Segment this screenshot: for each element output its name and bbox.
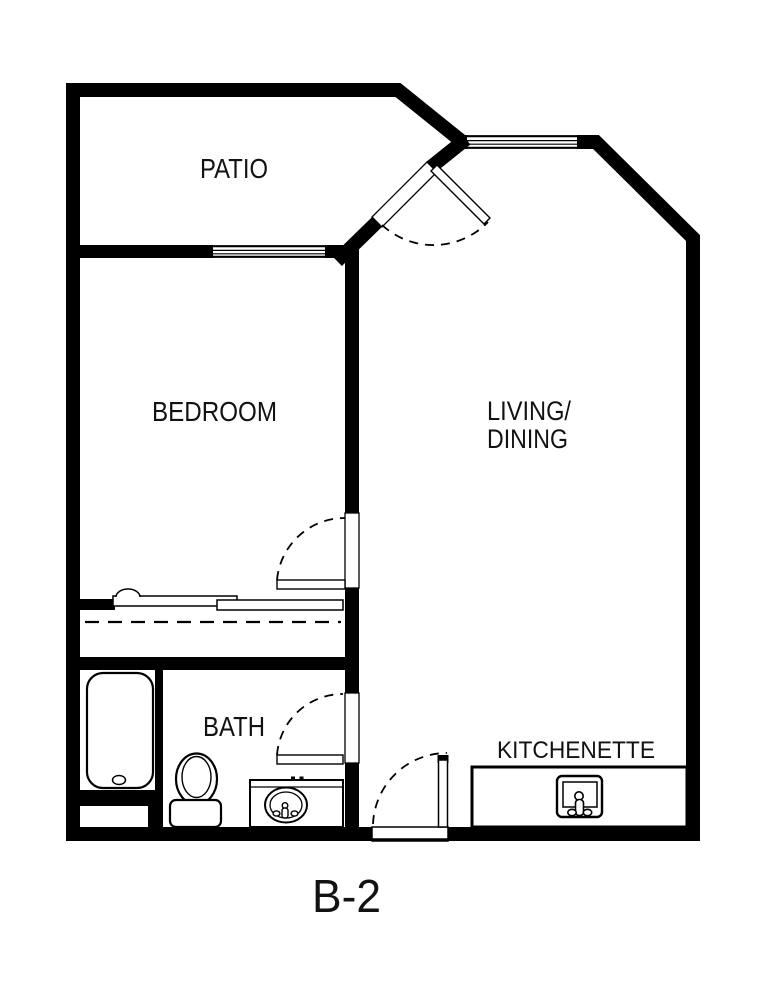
bathtub xyxy=(80,670,163,834)
vanity-spout xyxy=(282,808,288,818)
angled-wall-stub-upper xyxy=(431,139,466,167)
floor-plan-drawing: PATIO BEDROOM LIVING/ DINING BATH KITCHE… xyxy=(0,0,767,998)
exterior-wall-outline xyxy=(73,90,693,834)
room-label-bath: BATH xyxy=(203,711,265,742)
entry-door-leaf xyxy=(439,760,448,827)
bath-living-wall-lower xyxy=(345,763,359,828)
toilet-tank xyxy=(170,800,221,827)
bedroom-door-leaf xyxy=(277,580,345,589)
bedroom-living-wall-middle xyxy=(345,588,359,693)
bath-doorway-opening xyxy=(345,693,359,763)
room-label-kitchenette: KITCHENETTE xyxy=(497,737,655,764)
kitchen-sink-handle xyxy=(583,809,591,815)
closet-sliding-doors xyxy=(80,589,343,622)
bedroom-doorway-opening xyxy=(345,513,359,588)
bedroom-window xyxy=(213,245,325,258)
living-top-window xyxy=(467,135,577,149)
bedroom-living-wall-upper xyxy=(345,245,359,513)
bath-door-leaf xyxy=(277,755,343,764)
entry-door xyxy=(372,753,449,841)
bathtub-outline xyxy=(87,673,153,788)
bedroom-door xyxy=(277,513,359,589)
tub-wall-niche xyxy=(80,806,148,827)
kitchen-sink-handle xyxy=(568,809,576,815)
vanity-handle xyxy=(291,811,298,816)
patio-door xyxy=(372,162,490,245)
closet-door-handle xyxy=(116,589,140,597)
room-label-bedroom: BEDROOM xyxy=(152,396,277,427)
vanity-faucet-tick xyxy=(291,777,295,781)
floor-plan-page: PATIO BEDROOM LIVING/ DINING BATH KITCHE… xyxy=(0,0,767,998)
vanity-sink xyxy=(250,777,343,828)
patio-door-swing-arc xyxy=(382,222,488,245)
patio-doorway-opening xyxy=(372,162,437,227)
entry-door-swing-arc xyxy=(373,753,447,824)
patio-door-leaf xyxy=(431,165,490,224)
room-label-patio: PATIO xyxy=(200,153,268,184)
bath-door xyxy=(277,693,359,764)
bathtub-drain xyxy=(113,776,126,785)
bedroom-door-swing-arc xyxy=(277,518,345,580)
bath-door-swing-arc xyxy=(277,694,343,755)
vanity-handle xyxy=(273,811,280,816)
toilet xyxy=(170,754,221,828)
room-label-dining: DINING xyxy=(487,424,568,454)
plan-title: B-2 xyxy=(312,870,381,922)
tub-partition-wall xyxy=(155,670,163,797)
bedroom-bath-wall xyxy=(80,657,346,670)
vanity-faucet-tick xyxy=(300,777,304,781)
closet-track-end xyxy=(80,599,115,610)
closet-door-panel-right xyxy=(217,600,343,610)
kitchen-sink xyxy=(557,776,602,817)
room-label-living: LIVING/ xyxy=(487,396,571,426)
